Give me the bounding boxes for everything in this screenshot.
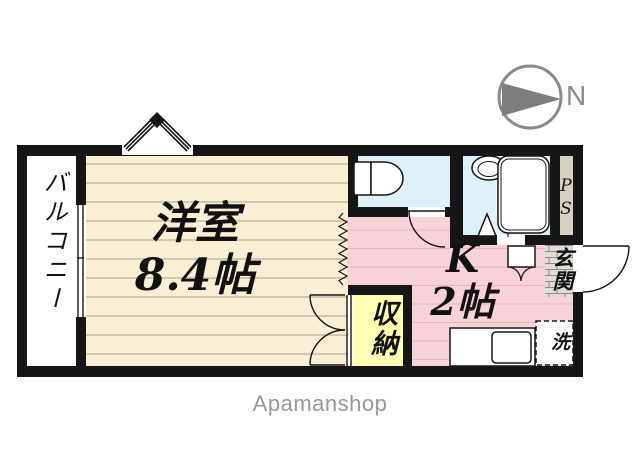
compass-icon — [499, 66, 561, 128]
pipe-space-label: PS — [556, 176, 576, 222]
kitchen-sink-icon — [450, 328, 535, 366]
bay-window-icon — [122, 112, 193, 156]
floor-plan-page: バルコニー 洋室 8.4帖 K 2帖 収納 玄関 PS 洗 N Apamansh… — [0, 0, 640, 455]
storage-label: 収納 — [362, 299, 401, 359]
north-label: N — [566, 80, 586, 112]
western-room-name: 洋室 — [90, 198, 300, 250]
bathtub-icon — [498, 156, 549, 233]
balcony-label: バルコニー — [36, 170, 71, 315]
washer-label: 洗 — [546, 332, 573, 351]
western-room-label: 洋室 8.4帖 — [90, 198, 300, 302]
western-room-size: 8.4帖 — [90, 250, 300, 302]
kitchen-name: K — [400, 238, 525, 281]
kitchen-label: K 2帖 — [400, 238, 525, 323]
toilet-icon — [354, 162, 403, 195]
front-door-icon — [583, 246, 629, 292]
brand-watermark: Apamanshop — [220, 391, 420, 417]
kitchen-size: 2帖 — [400, 281, 525, 324]
entrance-label: 玄関 — [547, 247, 577, 293]
sliding-window-icon — [77, 205, 84, 317]
